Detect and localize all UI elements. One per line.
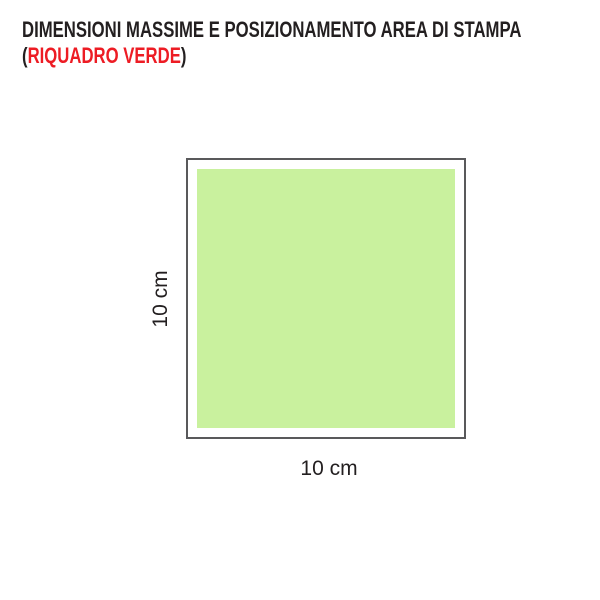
height-dimension-label: 10 cm: [149, 269, 173, 329]
page-title-line2: (RIQUADRO VERDE): [22, 43, 600, 69]
page-title-line1: DIMENSIONI MASSIME E POSIZIONAMENTO AREA…: [22, 17, 600, 43]
title-highlight: RIQUADRO VERDE: [28, 43, 181, 68]
title-paren-close: ): [181, 43, 187, 68]
page: DIMENSIONI MASSIME E POSIZIONAMENTO AREA…: [0, 0, 600, 600]
width-dimension-label: 10 cm: [189, 457, 469, 481]
print-area-green-square: [197, 169, 455, 428]
page-title: DIMENSIONI MASSIME E POSIZIONAMENTO AREA…: [22, 17, 600, 69]
dimension-outline-square: [186, 158, 466, 439]
